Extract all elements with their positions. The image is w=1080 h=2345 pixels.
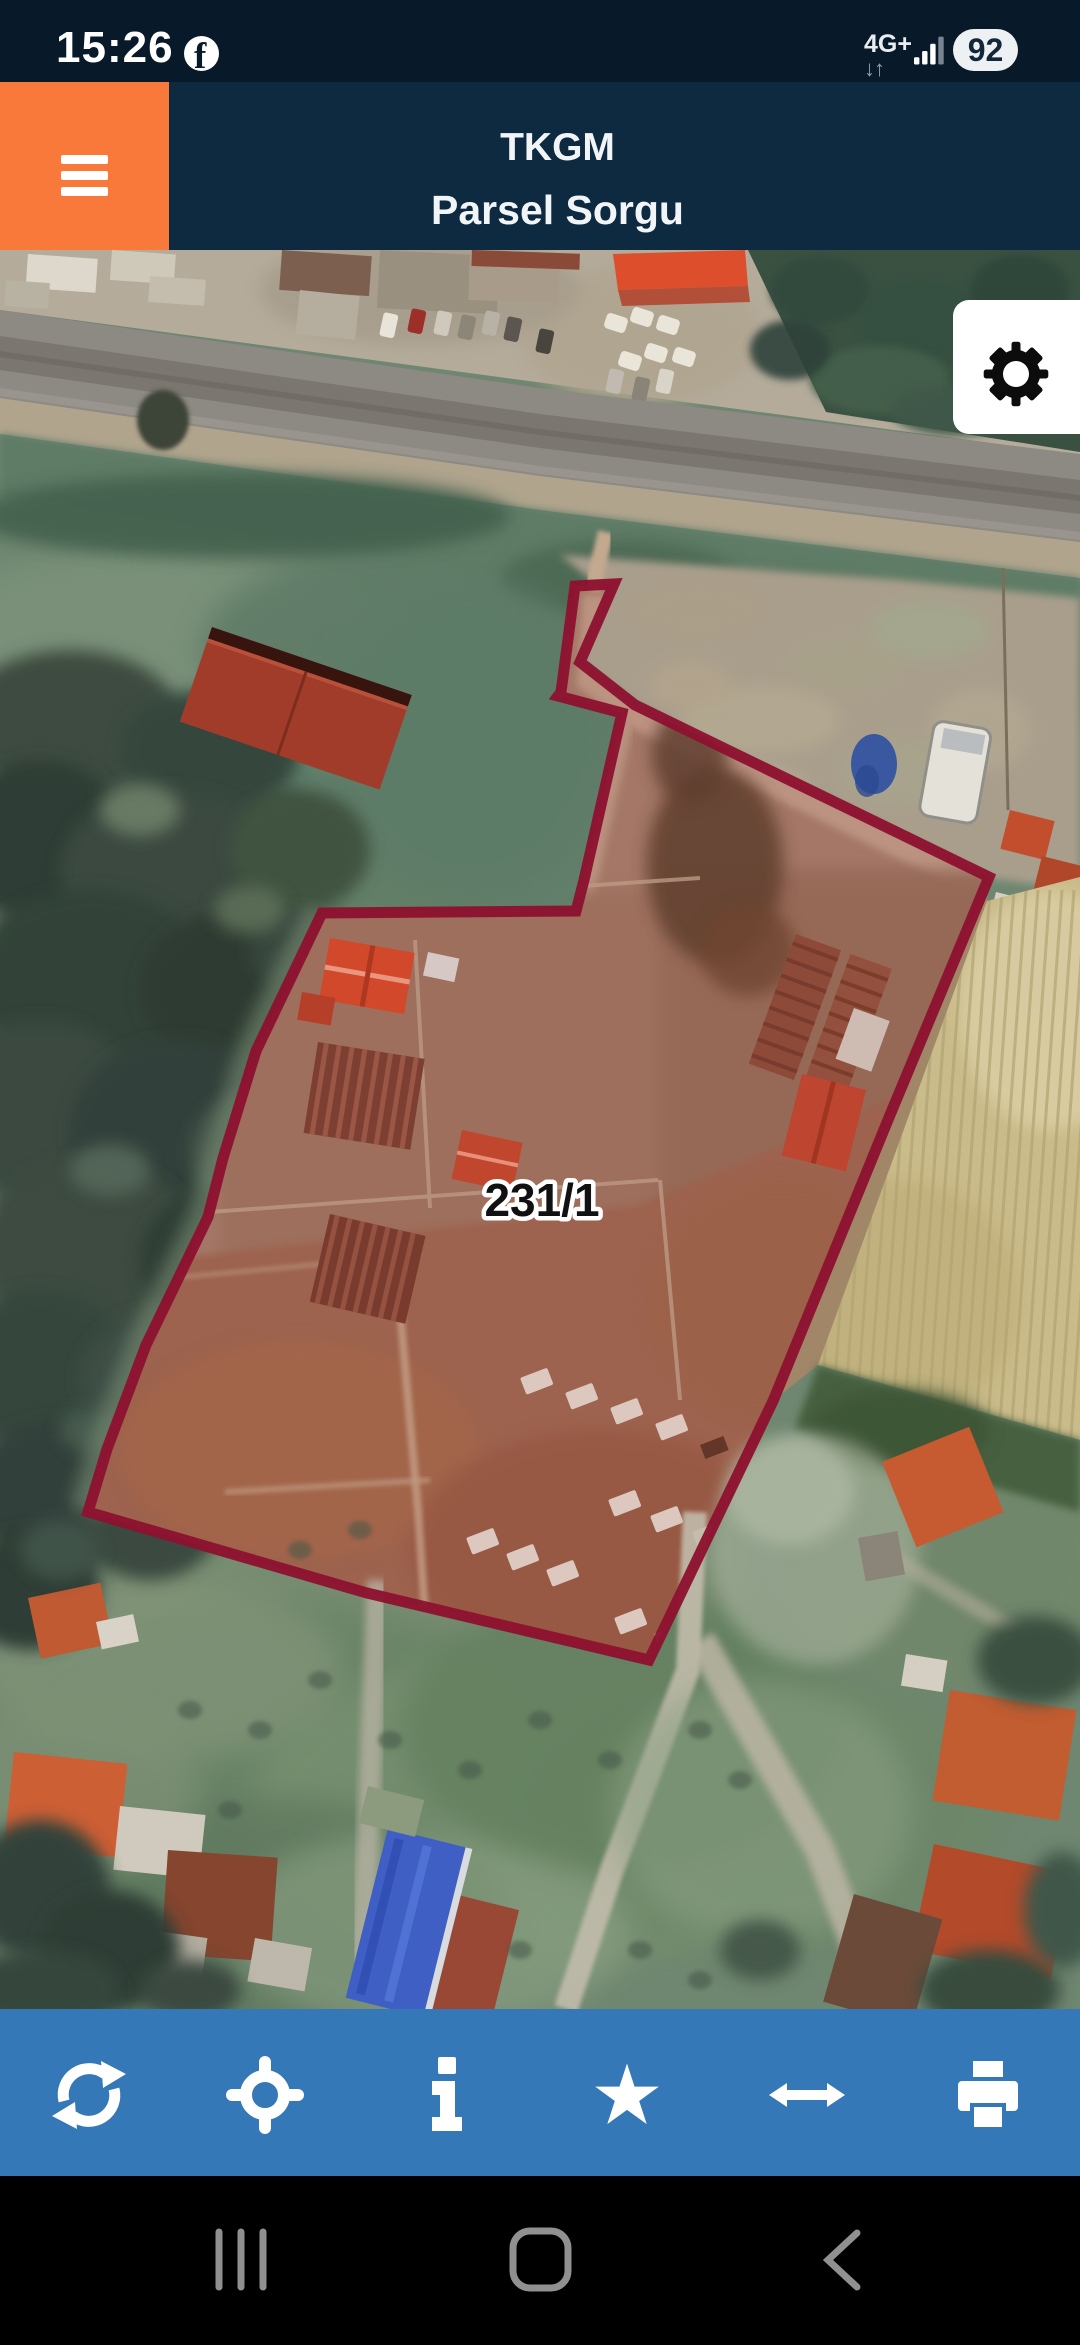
svg-text:231/1: 231/1	[484, 1174, 599, 1226]
